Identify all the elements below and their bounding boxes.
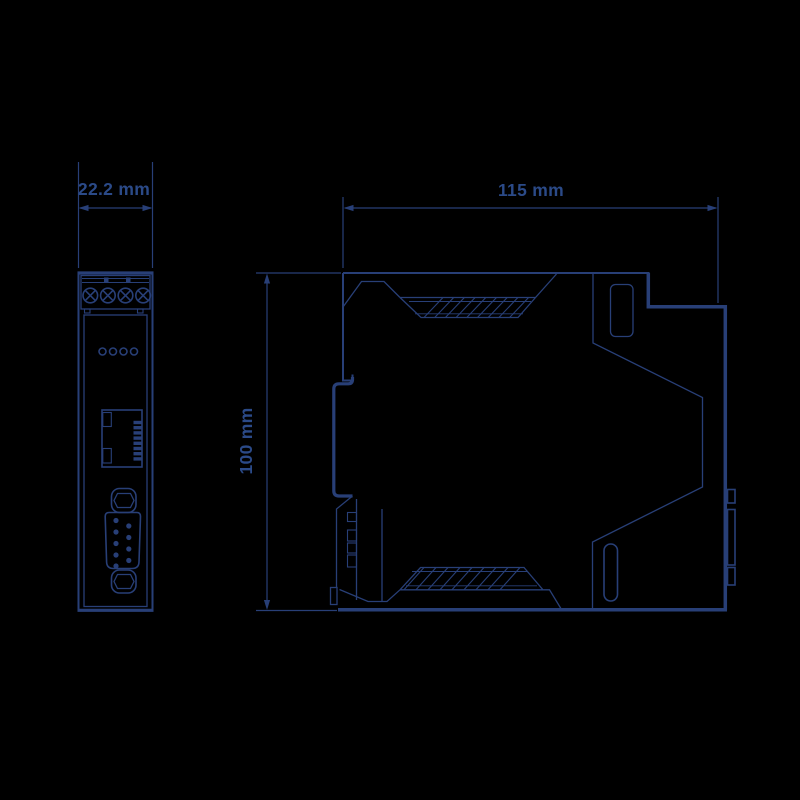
vent-band-outline [400,274,557,318]
rj45-pins [134,421,142,461]
connector-tab [728,490,736,504]
clip-ramp [340,590,401,602]
side-view [331,273,736,610]
clip-body [337,496,383,601]
clip-foot [331,588,338,605]
status-leds [99,348,138,355]
bus-connector-tabs [728,490,736,586]
rj45-latch-notch [103,449,112,464]
arrowhead-right [143,205,153,211]
led-indicator [110,348,117,355]
terminal-screw [101,288,116,303]
db9-pins [113,518,131,569]
terminal-screw [136,288,151,303]
db9-shell [105,513,140,569]
terminal-screw [83,288,98,303]
vent-grille-bottom [400,568,562,610]
arrowhead-right [708,205,718,211]
rj45-port [102,410,142,467]
clip-latch [348,513,357,568]
db9-connector [105,489,140,594]
dimension-front-width: 22.2 mm [78,162,153,268]
dimension-label: 115 mm [498,180,564,200]
front-face-profile [593,274,703,609]
arrowhead-left [344,205,354,211]
db9-screw-hex-top [114,494,134,508]
dimension-height: 100 mm [236,273,341,611]
terminal-block [81,276,150,314]
din-rail-clip [331,377,401,605]
terminal-screw [118,288,133,303]
vent-band-outline [400,568,562,610]
led-indicator [99,348,106,355]
device-technical-drawing: 22.2 mm 115 mm 100 mm [0,0,800,800]
terminal-bar-notch [104,278,109,284]
left-edge [343,273,353,381]
arrowhead-left [79,205,89,211]
rj45-latch-notch [103,413,112,427]
arrowhead-top [264,274,270,284]
terminal-screws [83,288,150,303]
led-indicator [131,348,138,355]
connector-tab [728,568,736,586]
top-step-profile [343,282,400,308]
dimension-label: 22.2 mm [78,179,150,199]
technical-drawing-canvas: 22.2 mm 115 mm 100 mm [0,0,800,800]
db9-screw-boss-top [112,489,137,513]
dimension-side-width: 115 mm [343,180,718,303]
din-rail-channel [334,377,353,496]
dimension-label: 100 mm [236,408,256,475]
terminal-bar-notch [126,278,131,284]
connector-tab [728,510,736,566]
vent-hatching [404,568,520,590]
db9-screw-boss-bottom [112,570,137,593]
right-edge [648,273,725,610]
label-slot [611,285,634,337]
bottom-slot [604,544,618,601]
arrowhead-bottom [264,600,270,610]
led-indicator [120,348,127,355]
db9-screw-hex-bottom [114,575,134,589]
vent-grille-top [400,274,557,318]
housing-inner-outline [84,315,147,607]
vent-hatching [424,298,529,318]
front-view [78,273,154,611]
